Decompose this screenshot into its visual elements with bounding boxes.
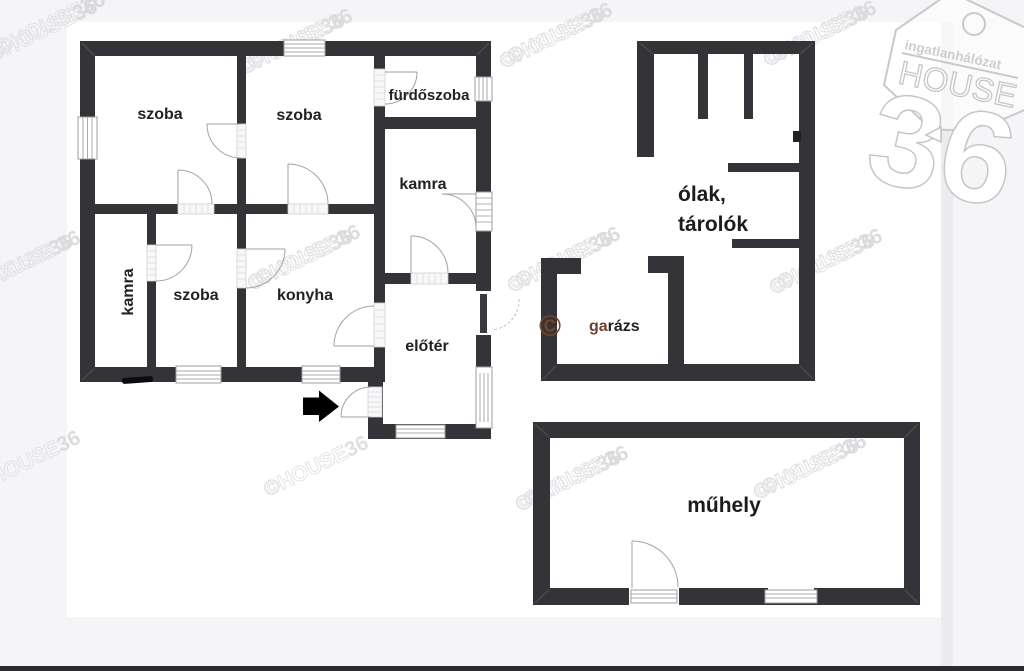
- svg-text:műhely: műhely: [687, 494, 761, 517]
- svg-text:garázs: garázs: [589, 318, 640, 335]
- svg-text:36: 36: [856, 63, 1024, 236]
- svg-text:ólak,: ólak,: [678, 183, 726, 206]
- svg-text:szoba: szoba: [276, 107, 321, 124]
- svg-text:konyha: konyha: [277, 287, 333, 304]
- svg-text:fürdőszoba: fürdőszoba: [389, 87, 470, 104]
- svg-text:tárolók: tárolók: [678, 213, 748, 236]
- svg-text:©: ©: [539, 310, 561, 343]
- svg-text:kamra: kamra: [120, 268, 137, 315]
- svg-text:szoba: szoba: [173, 287, 218, 304]
- svg-text:kamra: kamra: [399, 176, 446, 193]
- svg-text:szoba: szoba: [137, 106, 182, 123]
- svg-text:előtér: előtér: [405, 338, 449, 355]
